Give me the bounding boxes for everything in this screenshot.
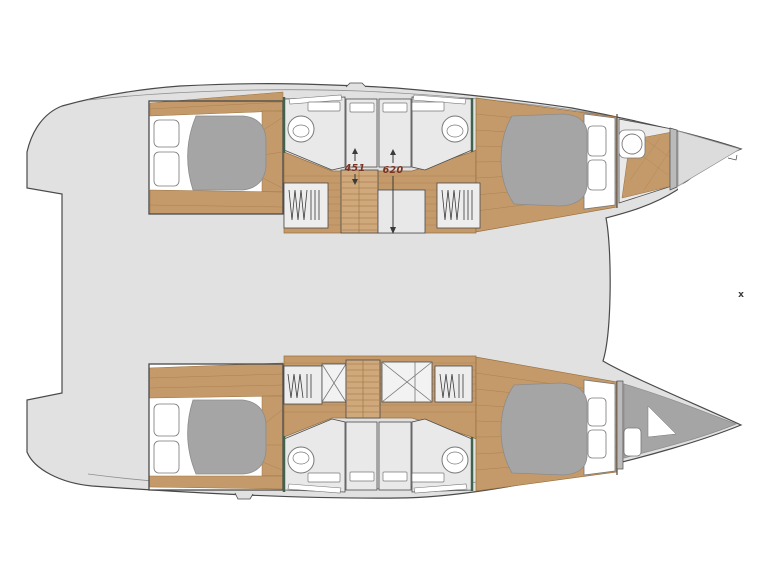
counter bbox=[412, 473, 444, 482]
pillow bbox=[588, 160, 606, 190]
bow-bulkhead bbox=[670, 128, 677, 190]
bed-duvet bbox=[188, 116, 266, 190]
wood-bottom-band bbox=[150, 190, 283, 214]
stbd-fore-cabin-bed bbox=[501, 380, 617, 475]
port-hull bbox=[149, 92, 740, 233]
stair-landing bbox=[378, 190, 425, 233]
mast-step-notch bbox=[346, 83, 366, 87]
stairs-icon bbox=[341, 170, 378, 233]
wood-bottom-band bbox=[149, 476, 283, 489]
x-marker: x bbox=[738, 290, 744, 300]
bow-hatch bbox=[624, 428, 641, 456]
sink-icon bbox=[442, 116, 468, 142]
dimension-label: 451 bbox=[344, 163, 366, 174]
hanging-locker-icon bbox=[437, 183, 480, 228]
pillow bbox=[154, 441, 179, 473]
pillow bbox=[154, 404, 179, 436]
deck-plan-canvas: 451 620 x bbox=[0, 0, 770, 577]
pillow bbox=[154, 152, 179, 186]
port-fore-cabin-bed bbox=[501, 114, 617, 209]
counter bbox=[308, 102, 340, 111]
bed-duvet bbox=[188, 400, 266, 474]
bed-duvet bbox=[501, 114, 587, 206]
sink-icon bbox=[288, 116, 314, 142]
counter bbox=[383, 472, 407, 481]
dimension-label: 620 bbox=[383, 165, 404, 176]
starboard-hull bbox=[149, 356, 736, 493]
counter bbox=[412, 102, 444, 111]
port-aft-cabin bbox=[149, 92, 283, 214]
counter bbox=[308, 473, 340, 482]
sink-icon bbox=[288, 447, 314, 473]
wood-head-band bbox=[149, 363, 283, 398]
sink-icon bbox=[442, 447, 468, 473]
counter bbox=[350, 103, 374, 112]
hanging-locker-icon bbox=[284, 366, 322, 404]
hatch-icon bbox=[322, 364, 346, 402]
counter bbox=[383, 103, 407, 112]
counter bbox=[350, 472, 374, 481]
hanging-locker-icon bbox=[435, 366, 472, 402]
pillow bbox=[588, 430, 606, 458]
keel-tab bbox=[235, 493, 253, 499]
pillow bbox=[154, 120, 179, 147]
sink-icon bbox=[622, 134, 642, 154]
pillow bbox=[588, 398, 606, 426]
port-bow-tip bbox=[678, 131, 740, 196]
stbd-aft-cabin bbox=[149, 363, 283, 490]
catamaran-plan: 451 620 x bbox=[0, 0, 770, 577]
stbd-bow-berth bbox=[617, 381, 736, 469]
bow-bulkhead bbox=[617, 381, 623, 469]
bed-duvet bbox=[501, 383, 587, 475]
stairs-icon bbox=[346, 360, 380, 418]
hatch-icon bbox=[382, 362, 432, 402]
hanging-locker-icon bbox=[284, 183, 328, 228]
pillow bbox=[588, 126, 606, 156]
